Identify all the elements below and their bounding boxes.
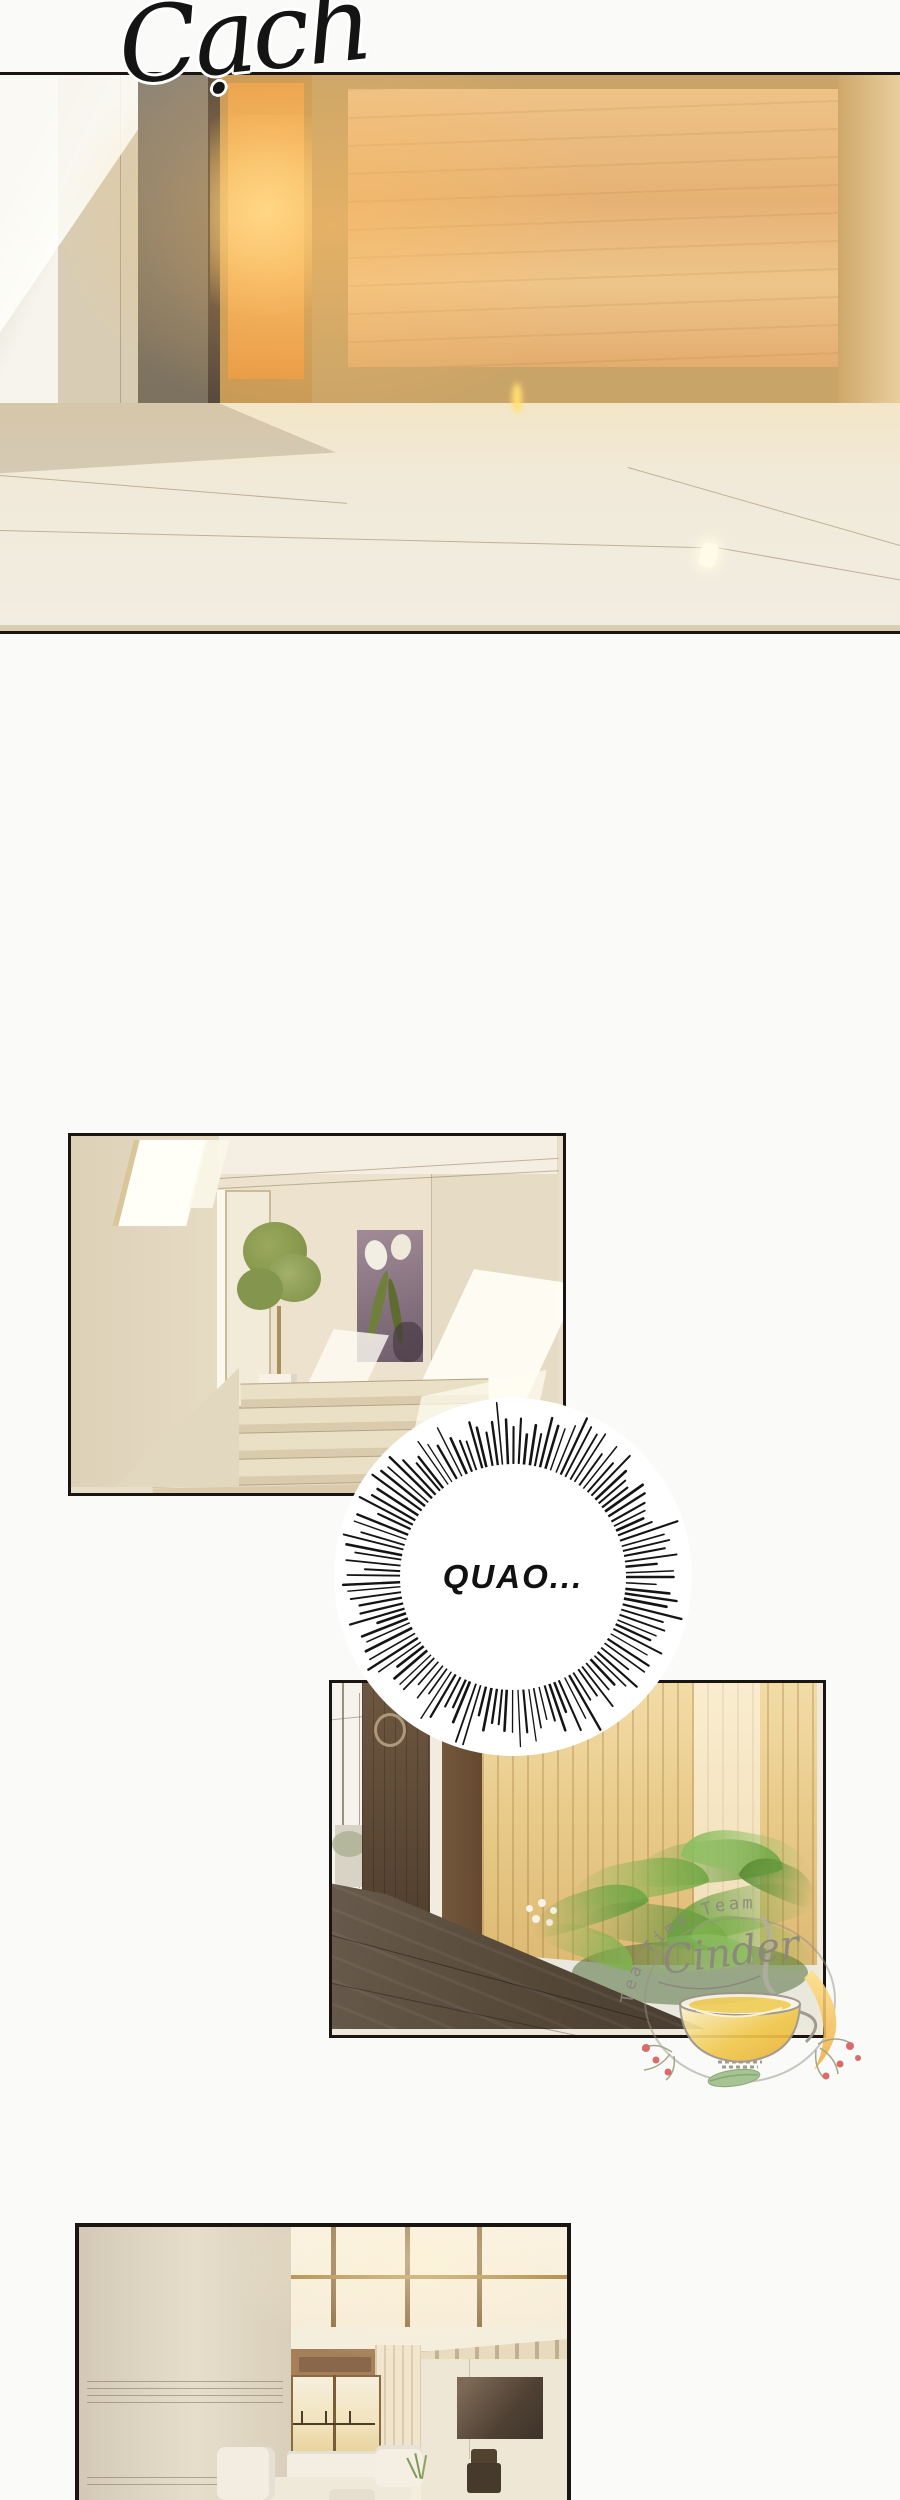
burst-speech-bubble: QUAO... xyxy=(328,1392,698,1762)
flower xyxy=(550,1907,557,1914)
flower xyxy=(526,1905,533,1912)
golden-swirl xyxy=(804,1970,836,2070)
sun-wash xyxy=(199,2227,567,2500)
sun-glow xyxy=(60,75,760,455)
flower xyxy=(532,1915,540,1923)
speech-text: QUAO... xyxy=(328,1392,698,1762)
wood-right-strip xyxy=(838,75,900,407)
panel-entry-door xyxy=(0,72,900,634)
translator-watermark: Tea Time Team Cinder xyxy=(612,1852,882,2092)
panel-living-room xyxy=(75,2223,571,2500)
leaf-icon xyxy=(707,2066,761,2089)
white-flowers xyxy=(524,1899,570,1933)
flare-streak xyxy=(512,383,522,413)
distant-bush xyxy=(332,1831,366,1857)
flower xyxy=(546,1919,553,1926)
comic-page: Cạch xyxy=(0,0,900,2500)
flower xyxy=(538,1899,546,1907)
teacup-icon xyxy=(680,1993,816,2067)
